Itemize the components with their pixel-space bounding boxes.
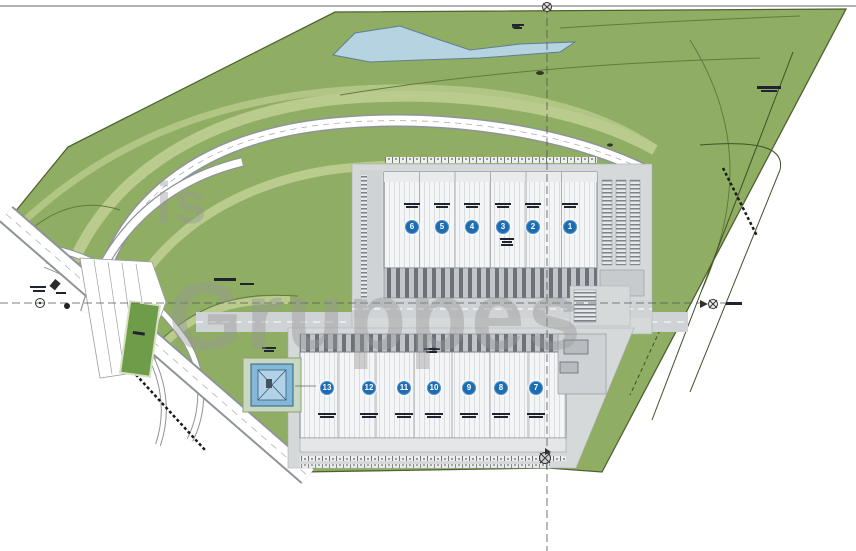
unit-marker-13: 13 xyxy=(320,381,334,395)
north-dock-zone xyxy=(384,268,597,298)
unit-marker-11: 11 xyxy=(397,381,411,395)
unit-number: 11 xyxy=(400,384,408,392)
unit-number: 10 xyxy=(430,384,439,392)
unit-marker-9: 9 xyxy=(462,381,476,395)
unit-marker-12: 12 xyxy=(362,381,376,395)
unit-marker-1: 1 xyxy=(563,220,577,234)
unit-marker-4: 4 xyxy=(465,220,479,234)
survey-left-label xyxy=(30,286,66,294)
unit-number: 4 xyxy=(470,223,474,231)
unit-number: 13 xyxy=(323,384,332,392)
unit-number: 1 xyxy=(568,223,572,231)
benchmark-top-icon xyxy=(543,3,552,12)
survey-right-marker-icon xyxy=(700,300,742,309)
north-center-label xyxy=(500,238,514,246)
unit-number: 2 xyxy=(531,223,535,231)
unit-number: 8 xyxy=(499,384,503,392)
site-plan-page: 6 5 4 3 2 1 13 12 11 10 9 8 7 is Gruppes xyxy=(0,0,856,551)
unit-number: 9 xyxy=(467,384,471,392)
unit-marker-2: 2 xyxy=(526,220,540,234)
unit-marker-6: 6 xyxy=(405,220,419,234)
unit-marker-5: 5 xyxy=(435,220,449,234)
unit-marker-10: 10 xyxy=(427,381,441,395)
gatehouse xyxy=(49,279,60,290)
unit-number: 7 xyxy=(534,384,538,392)
unit-number: 5 xyxy=(440,223,444,231)
unit-marker-3: 3 xyxy=(496,220,510,234)
dimension-ticks-north xyxy=(385,157,597,163)
unit-number: 12 xyxy=(365,384,374,392)
survey-point-icon xyxy=(64,303,70,309)
south-hall xyxy=(300,352,566,438)
site-map xyxy=(0,0,856,551)
unit-marker-7: 7 xyxy=(529,381,543,395)
dimension-ticks-south xyxy=(300,456,566,461)
unit-marker-8: 8 xyxy=(494,381,508,395)
unit-number: 6 xyxy=(410,223,414,231)
unit-number: 3 xyxy=(501,223,505,231)
